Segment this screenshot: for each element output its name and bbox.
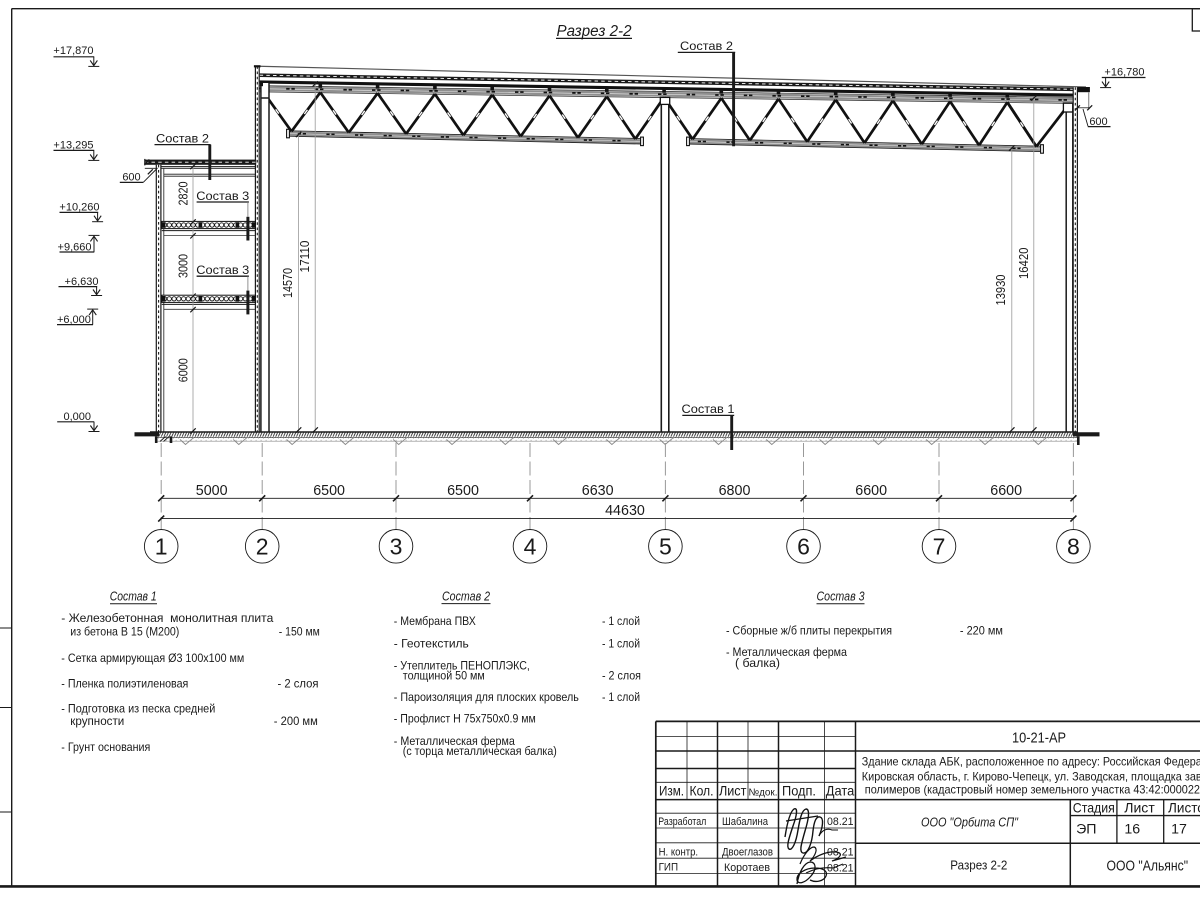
svg-text:Разрез 2-2: Разрез 2-2 — [557, 23, 632, 40]
svg-text:из бетона В 15 (М200): из бетона В 15 (М200) — [70, 625, 179, 639]
svg-text:ООО "Орбита СП": ООО "Орбита СП" — [921, 815, 1019, 830]
svg-text:Состав 2: Состав 2 — [680, 39, 733, 53]
svg-text:17110: 17110 — [297, 241, 312, 273]
svg-text:2820: 2820 — [175, 182, 190, 206]
svg-text:Коротаев: Коротаев — [724, 862, 770, 874]
svg-text:- Геотекстиль: - Геотекстиль — [394, 636, 469, 650]
svg-text:2: 2 — [256, 534, 269, 560]
svg-text:- 2 слоя: - 2 слоя — [602, 668, 641, 682]
svg-text:- 220 мм: - 220 мм — [960, 623, 1003, 637]
svg-text:- Пленка полиэтиленовая: - Пленка полиэтиленовая — [61, 676, 188, 690]
svg-text:44630: 44630 — [605, 503, 645, 519]
svg-text:Разработал: Разработал — [658, 816, 706, 828]
svg-text:10-21-АР: 10-21-АР — [1012, 730, 1066, 747]
svg-text:16: 16 — [1124, 822, 1140, 838]
svg-text:- 1 слой: - 1 слой — [602, 690, 640, 704]
svg-text:Состав 3: Состав 3 — [817, 589, 866, 604]
svg-text:№док.: №док. — [749, 787, 778, 798]
svg-text:+17,870: +17,870 — [53, 45, 93, 57]
svg-text:толщиной 50 мм: толщиной 50 мм — [403, 668, 485, 682]
svg-text:+16,780: +16,780 — [1104, 66, 1144, 78]
svg-text:- Подготовка из песка средней: - Подготовка из песка средней — [61, 701, 215, 715]
svg-text:- Сборные ж/б плиты перекрытия: - Сборные ж/б плиты перекрытия — [726, 623, 892, 637]
svg-text:- Сетка армирующая Ø3 100х100: - Сетка армирующая Ø3 100х100 мм — [61, 651, 244, 665]
svg-text:6000: 6000 — [175, 358, 190, 382]
svg-text:- 2 слоя: - 2 слоя — [278, 676, 319, 690]
svg-text:Листов: Листов — [1168, 800, 1200, 815]
svg-text:6600: 6600 — [990, 483, 1022, 499]
svg-text:Лист: Лист — [719, 784, 747, 799]
svg-text:Подп.: Подп. — [782, 784, 816, 799]
svg-text:Кировская область, г. Кирово-Ч: Кировская область, г. Кирово-Чепецк, ул.… — [862, 770, 1200, 784]
svg-text:Состав 1: Состав 1 — [110, 589, 157, 604]
svg-text:7: 7 — [933, 534, 946, 560]
svg-text:полимеров (кадастровый номер з: полимеров (кадастровый номер земельного … — [865, 783, 1200, 797]
svg-text:- 150 мм: - 150 мм — [279, 625, 320, 639]
svg-text:- Железобетонная монолитная п: - Железобетонная монолитная плита — [61, 611, 273, 625]
svg-text:6800: 6800 — [719, 483, 751, 499]
svg-text:6500: 6500 — [447, 483, 479, 499]
svg-text:Состав 1: Состав 1 — [682, 402, 735, 416]
svg-text:6500: 6500 — [313, 483, 345, 499]
svg-text:3: 3 — [390, 534, 403, 560]
svg-text:- Грунт основания: - Грунт основания — [61, 740, 150, 754]
svg-text:Состав 3: Состав 3 — [196, 263, 249, 277]
svg-text:3000: 3000 — [175, 254, 190, 278]
svg-text:0,000: 0,000 — [63, 411, 91, 423]
svg-text:- 200 мм: - 200 мм — [274, 714, 318, 728]
svg-text:17: 17 — [1171, 822, 1187, 838]
svg-text:1: 1 — [155, 534, 168, 560]
svg-text:Н. контр.: Н. контр. — [659, 846, 699, 858]
svg-text:08.21: 08.21 — [827, 863, 854, 875]
svg-text:5000: 5000 — [196, 483, 228, 499]
svg-text:Изм.: Изм. — [659, 784, 684, 799]
svg-text:5: 5 — [659, 534, 672, 560]
svg-text:Шабалина: Шабалина — [722, 816, 769, 828]
svg-text:- Профлист Н 75х750х0.9 мм: - Профлист Н 75х750х0.9 мм — [394, 711, 536, 725]
svg-text:Состав 2: Состав 2 — [442, 588, 491, 603]
svg-text:16420: 16420 — [1016, 248, 1031, 280]
svg-text:Стадия: Стадия — [1073, 800, 1115, 815]
svg-text:- 1 слой: - 1 слой — [602, 636, 640, 650]
svg-text:8: 8 — [1067, 534, 1080, 560]
svg-text:Состав 3: Состав 3 — [196, 189, 249, 203]
svg-text:Кол.: Кол. — [690, 784, 714, 799]
svg-text:- Пароизоляция для плоских кро: - Пароизоляция для плоских кровель — [394, 690, 579, 704]
svg-text:6630: 6630 — [582, 483, 614, 499]
svg-text:ГИП: ГИП — [659, 862, 679, 874]
svg-text:- 1 слой: - 1 слой — [602, 614, 640, 628]
svg-text:13930: 13930 — [993, 275, 1008, 306]
svg-text:Лист: Лист — [1124, 800, 1155, 815]
svg-text:14570: 14570 — [280, 268, 295, 298]
svg-text:крупности: крупности — [70, 714, 124, 728]
svg-text:Двоеглазов: Двоеглазов — [722, 847, 773, 859]
svg-text:ООО "Альянс": ООО "Альянс" — [1107, 858, 1189, 874]
svg-text:08.21: 08.21 — [827, 816, 854, 828]
svg-text:Состав 2: Состав 2 — [156, 132, 209, 146]
svg-text:Дата: Дата — [826, 784, 855, 799]
svg-text:ЭП: ЭП — [1076, 822, 1096, 838]
svg-text:4: 4 — [524, 534, 537, 560]
svg-text:6600: 6600 — [855, 483, 887, 499]
svg-text:Разрез 2-2: Разрез 2-2 — [950, 858, 1007, 872]
svg-text:6: 6 — [797, 534, 810, 560]
svg-text:Здание склада АБК, расположенн: Здание склада АБК, расположенное по адре… — [862, 755, 1200, 769]
svg-text:(с торца металлическая балка): (с торца металлическая балка) — [403, 744, 557, 758]
svg-text:- Мембрана ПВХ: - Мембрана ПВХ — [394, 614, 476, 628]
svg-text:( балка): ( балка) — [735, 656, 780, 670]
